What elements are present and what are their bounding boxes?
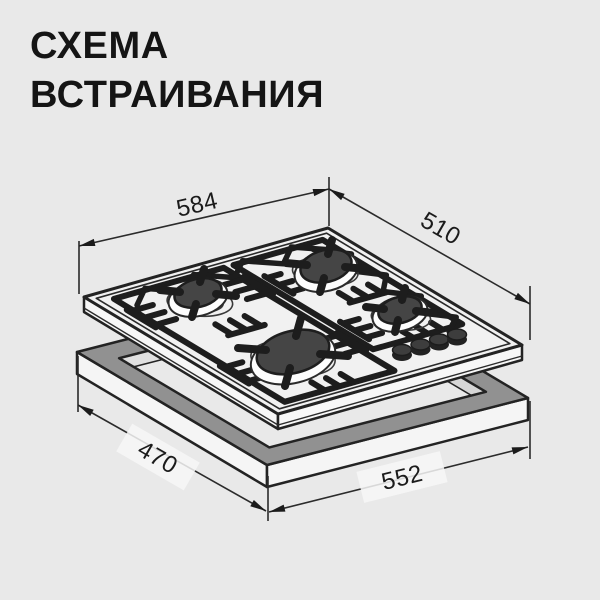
page-title: СХЕМА ВСТРАИВАНИЯ xyxy=(30,22,324,121)
knob-top xyxy=(393,345,412,356)
knob-top xyxy=(448,329,467,340)
title-line-2: ВСТРАИВАНИЯ xyxy=(30,71,324,120)
knob xyxy=(411,339,431,356)
knob xyxy=(447,329,467,346)
title-line-1: СХЕМА xyxy=(30,22,324,71)
knob-top xyxy=(411,339,430,350)
knob xyxy=(429,334,449,351)
knob xyxy=(392,345,412,362)
screenshot-root: СХЕМА ВСТРАИВАНИЯ xyxy=(0,0,600,600)
knob-top xyxy=(430,334,449,345)
